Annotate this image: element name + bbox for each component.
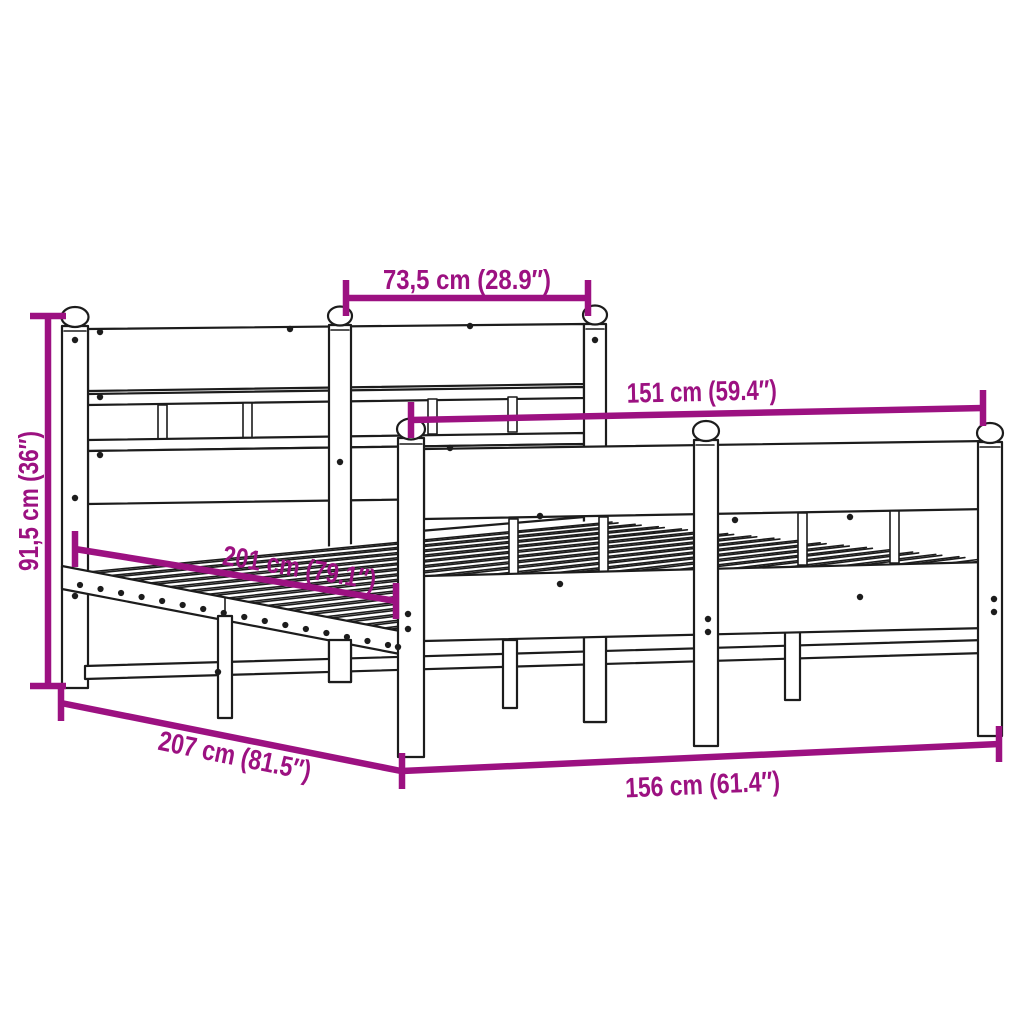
bolt-dot bbox=[592, 337, 598, 343]
bolt-dot bbox=[287, 326, 293, 332]
footboard-post-center bbox=[694, 440, 718, 746]
bolt-dot bbox=[405, 626, 411, 632]
footboard-post-left bbox=[398, 438, 424, 757]
bolt-dot bbox=[405, 611, 411, 617]
bed-frame-diagram: 73,5 cm (28.9″) 151 cm (59.4″) 91,5 cm (… bbox=[0, 0, 1024, 1024]
bolt-dot bbox=[991, 596, 997, 602]
headboard-post-left bbox=[62, 326, 88, 688]
bolt-dot bbox=[732, 517, 738, 523]
bolt-dot bbox=[447, 445, 453, 451]
dimension-label-inner-width: 151 cm (59.4″) bbox=[626, 374, 777, 408]
bed-frame-drawing bbox=[62, 306, 1004, 758]
bolt-dot bbox=[337, 459, 343, 465]
bolt-dot bbox=[705, 629, 711, 635]
bolt-dot bbox=[857, 594, 863, 600]
support-leg bbox=[503, 640, 517, 708]
footboard-post-center-cap bbox=[693, 421, 719, 441]
dimension-label-headboard-height: 91,5 cm (36″) bbox=[13, 431, 44, 571]
bolt-dot bbox=[705, 616, 711, 622]
support-leg bbox=[584, 628, 606, 722]
dimension-label-total-length: 207 cm (81.5″) bbox=[156, 725, 314, 786]
bolt-dot bbox=[537, 513, 543, 519]
bolt-dot bbox=[215, 669, 221, 675]
bolt-dot bbox=[97, 452, 103, 458]
bolt-dot bbox=[395, 644, 401, 650]
bolt-dot bbox=[72, 337, 78, 343]
bolt-dot bbox=[467, 323, 473, 329]
bolt-dot bbox=[72, 593, 78, 599]
bolt-dot bbox=[991, 609, 997, 615]
bolt-dot bbox=[557, 581, 563, 587]
footboard-post-right bbox=[978, 442, 1002, 736]
support-leg bbox=[329, 640, 351, 682]
support-leg bbox=[218, 616, 232, 718]
dimension-label-total-width: 156 cm (61.4″) bbox=[624, 766, 780, 804]
bolt-dot bbox=[847, 514, 853, 520]
footboard bbox=[397, 419, 1003, 758]
bolt-dot bbox=[72, 495, 78, 501]
bolt-dot bbox=[97, 394, 103, 400]
dimension-label-headboard-section-width: 73,5 cm (28.9″) bbox=[383, 264, 551, 295]
product-dimension-diagram: 73,5 cm (28.9″) 151 cm (59.4″) 91,5 cm (… bbox=[0, 0, 1024, 1024]
bolt-dot bbox=[97, 329, 103, 335]
